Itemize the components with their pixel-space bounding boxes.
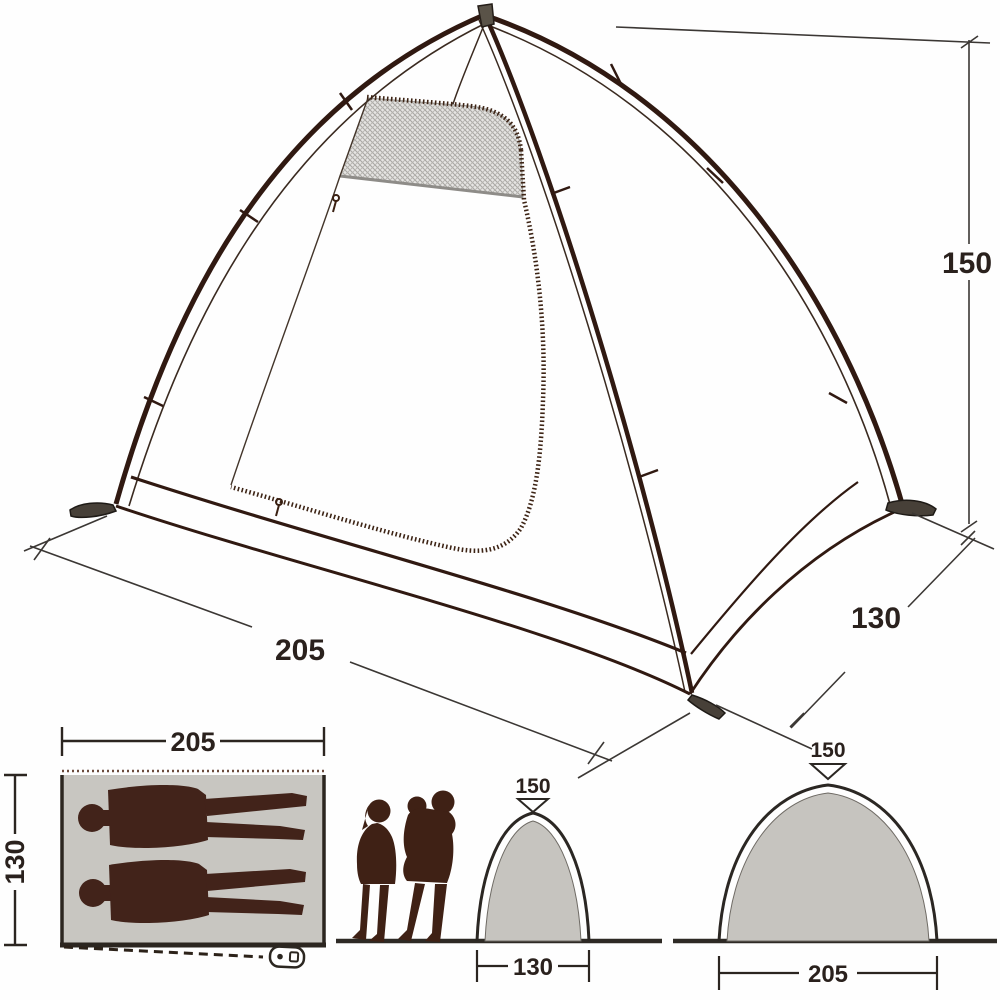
pole-right-arch — [484, 15, 903, 507]
end-profile: 150 130 — [477, 775, 589, 982]
seam-front-tub — [131, 477, 686, 653]
door-left-edge — [231, 98, 368, 485]
tent-dimension-diagram: 150 205 130 — [0, 0, 1000, 1000]
side-profile-width-label: 205 — [808, 961, 848, 988]
floor-plan-depth-label: 130 — [0, 839, 30, 884]
seam-right-tub — [691, 482, 858, 654]
fabric-edge-left — [129, 23, 486, 506]
triangle-down-icon — [811, 764, 845, 779]
mesh-window — [340, 98, 523, 197]
hem-front — [116, 506, 690, 694]
end-profile-width-label: 130 — [513, 954, 553, 981]
tick — [790, 713, 804, 727]
side-profile-height-label: 150 — [810, 739, 845, 762]
width-dimension-label: 205 — [275, 634, 325, 667]
extension-line-right — [912, 513, 994, 549]
side-profile-inner-arch — [727, 793, 929, 941]
extension-line-front-corner — [716, 705, 812, 749]
extension-line-top — [616, 27, 990, 43]
depth-dimension-label: 130 — [851, 602, 901, 635]
tent-peg-icon-left — [70, 503, 116, 517]
end-profile-inner-arch — [485, 821, 581, 941]
end-profile-height-label: 150 — [515, 775, 550, 798]
peg-dashed-line — [64, 947, 263, 957]
tent-3d-view: 150 205 130 — [24, 4, 994, 778]
adult-with-child-silhouette — [398, 791, 456, 943]
triangle-down-icon — [518, 799, 548, 812]
floor-plan: 205 130 — [0, 727, 326, 968]
fabric-edge-right — [482, 23, 891, 508]
side-profile: 150 205 — [673, 739, 997, 990]
dimension-width — [24, 516, 690, 778]
floor-plan-width-label: 205 — [170, 727, 215, 757]
dimension-line-depth-b — [908, 538, 975, 607]
pole-left-arch — [116, 15, 484, 504]
dimension-line-depth-a — [791, 672, 845, 728]
zipper-pull-icon — [276, 195, 339, 516]
height-dimension-label: 150 — [942, 247, 992, 280]
tent-peg-icon-plan — [269, 946, 304, 968]
extension-line-front — [578, 713, 690, 778]
tick — [961, 531, 975, 545]
dimension-line-width-a — [30, 546, 252, 627]
rear-pole-line — [453, 20, 486, 104]
extension-line-left — [24, 516, 107, 551]
dimension-line-width-b — [350, 662, 612, 761]
standing-woman-silhouette — [352, 800, 396, 943]
diagram-svg: 150 205 130 — [0, 0, 1000, 1000]
